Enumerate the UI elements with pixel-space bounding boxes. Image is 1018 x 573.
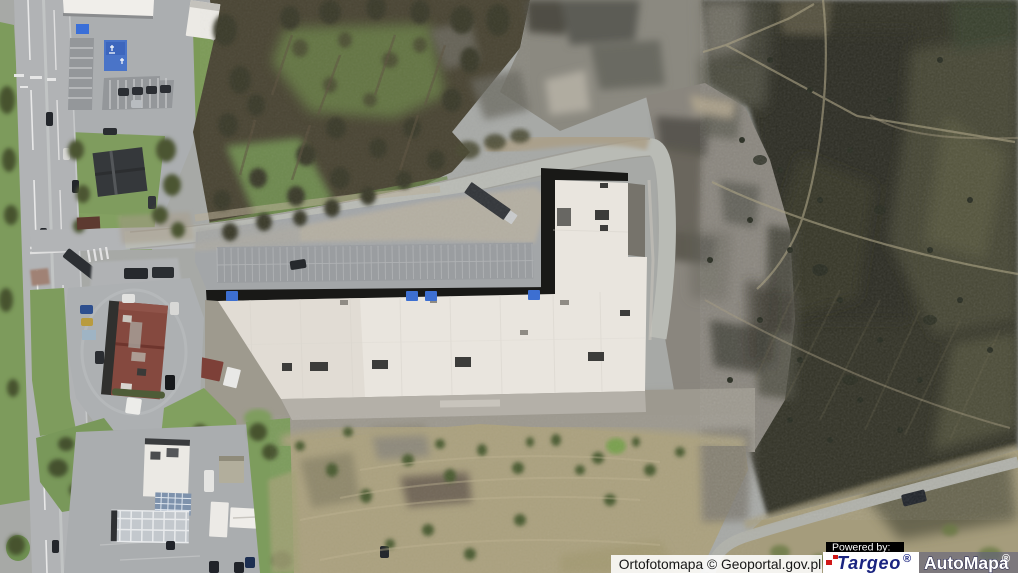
svg-text:Ortofotomapa © Geoportal.gov.p: Ortofotomapa © Geoportal.gov.pl xyxy=(619,557,821,572)
svg-text:®: ® xyxy=(903,553,911,565)
svg-text:AutoMapa: AutoMapa xyxy=(924,553,1009,573)
svg-text:Powered by:: Powered by: xyxy=(832,542,890,554)
svg-text:®: ® xyxy=(1002,553,1010,565)
svg-text:Targeo: Targeo xyxy=(837,553,901,573)
